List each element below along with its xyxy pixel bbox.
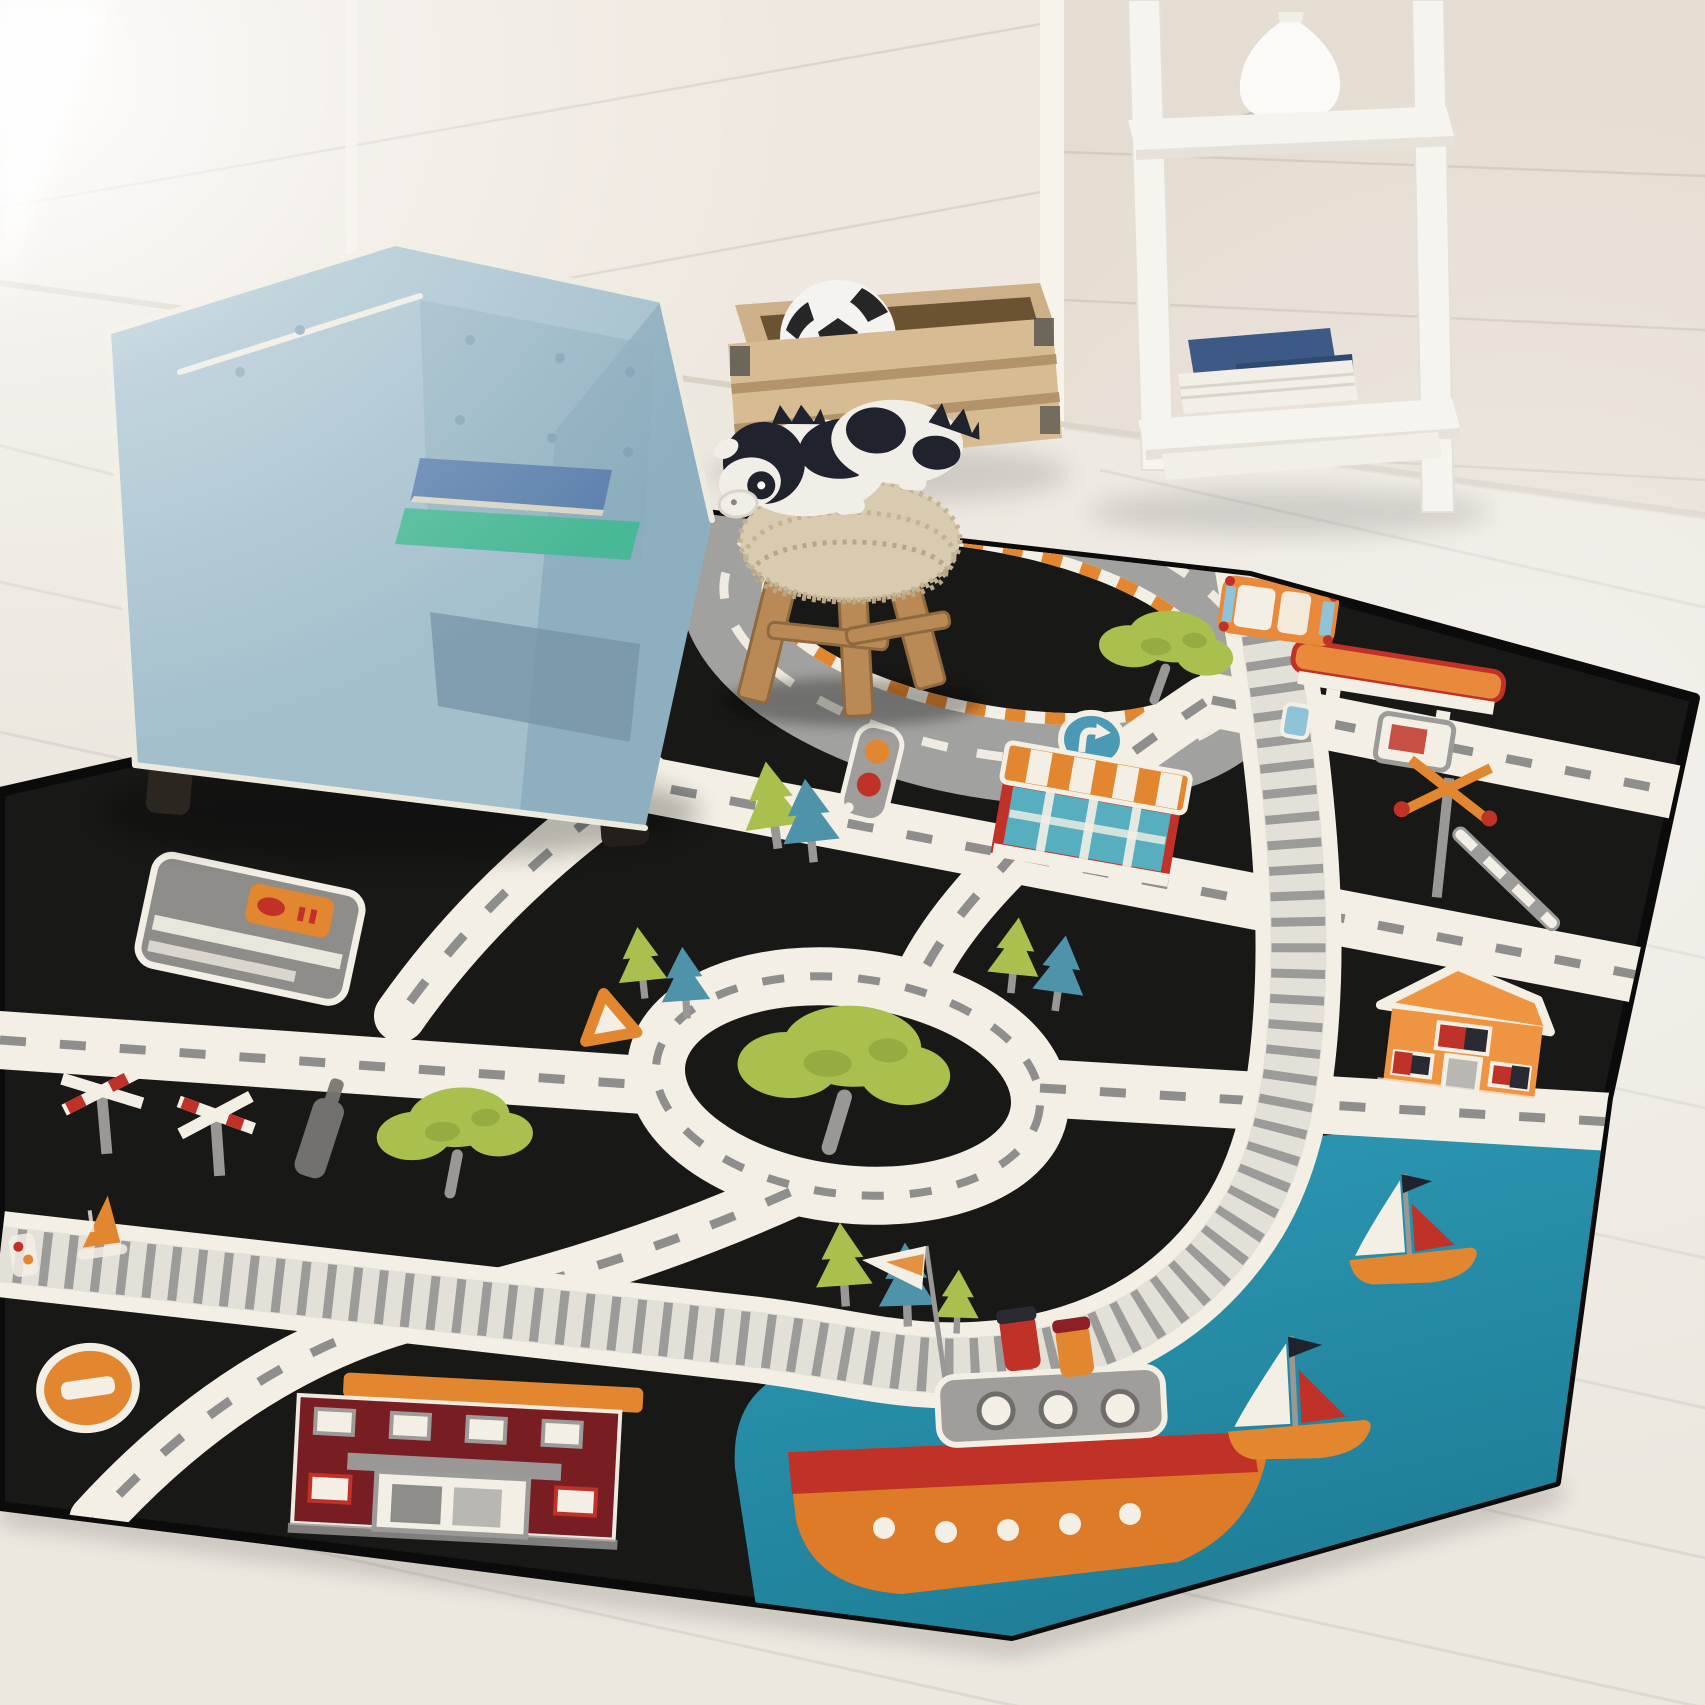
train-station-building [288, 1370, 644, 1551]
window-light [0, 0, 900, 760]
crate-bracket [1040, 406, 1060, 434]
crate-bracket [1034, 318, 1054, 346]
playroom-photo [0, 0, 1705, 1705]
scene-canvas [0, 0, 1705, 1705]
shelf-books [1178, 328, 1358, 414]
